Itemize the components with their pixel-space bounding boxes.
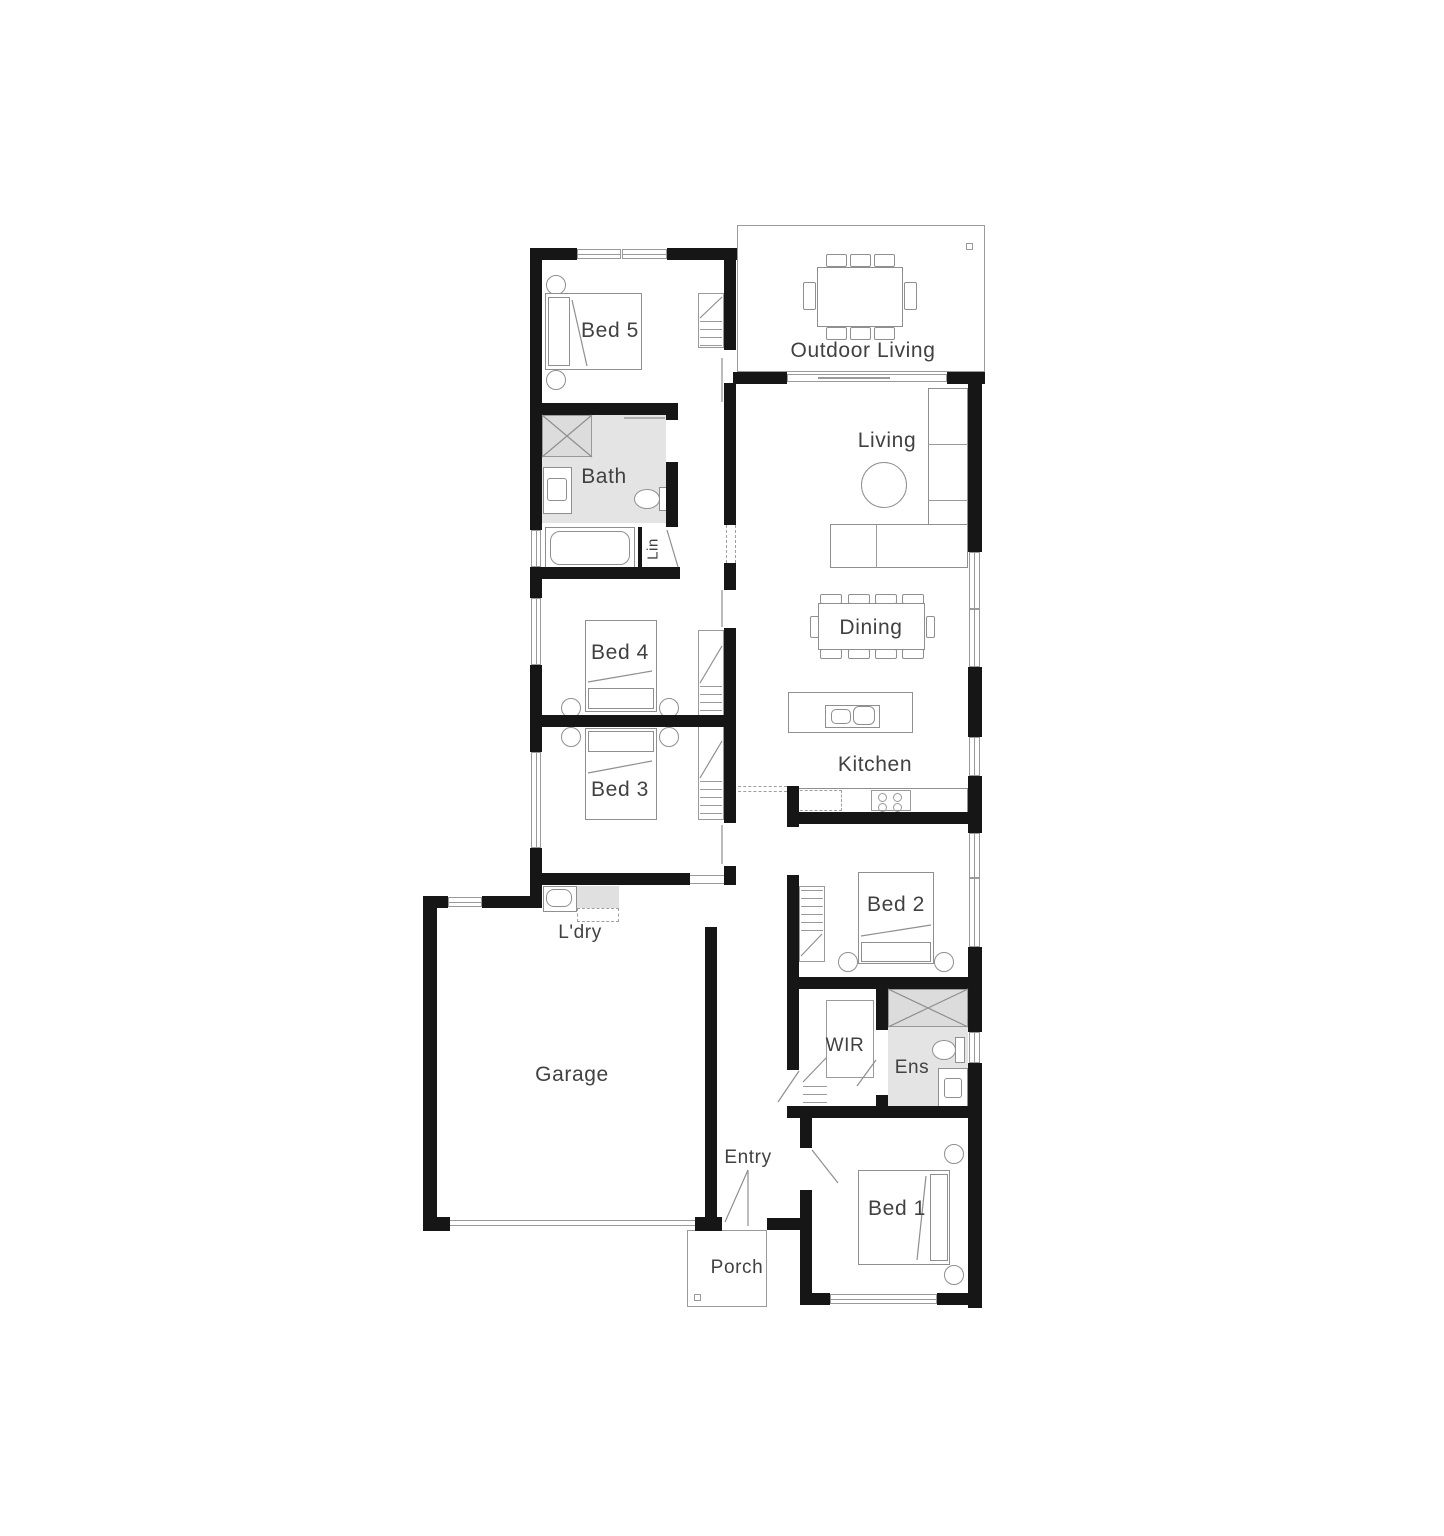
opening-dashed: [735, 525, 736, 563]
wall-segment: [542, 403, 668, 415]
cooktop-symbol: [871, 790, 911, 811]
wall-segment: [724, 563, 736, 590]
window: [531, 752, 541, 848]
wall-segment: [666, 462, 678, 527]
toilet-cistern: [955, 1037, 965, 1063]
window: [969, 737, 980, 776]
window: [531, 530, 541, 567]
wall-segment: [530, 248, 542, 530]
room-label-bath: Bath: [581, 465, 627, 489]
room-label-bed2: Bed 2: [867, 893, 925, 917]
room-label-ens: Ens: [895, 1057, 930, 1079]
bed-headboard: [588, 688, 654, 709]
floor-plan: Bed 5 Outdoor Living Living Bath Lin Din…: [0, 0, 1444, 1536]
bathtub-inner: [550, 531, 630, 565]
wall-segment: [530, 665, 542, 752]
chair-symbol: [826, 254, 847, 267]
room-label-outdoor: Outdoor Living: [791, 339, 936, 363]
bedside-table-icon: [838, 952, 858, 972]
wall-segment: [787, 989, 799, 1070]
wall-segment: [787, 1106, 970, 1118]
wall-segment: [968, 667, 982, 737]
wall-segment: [666, 403, 678, 420]
sofa-cushion-line: [928, 500, 968, 501]
wall-segment: [800, 1293, 830, 1305]
room-label-wir: WIR: [826, 1035, 865, 1057]
room-label-entry: Entry: [724, 1147, 771, 1169]
wall-segment: [968, 372, 982, 552]
window: [448, 897, 482, 907]
wall-segment: [667, 248, 737, 260]
overhead-dashed-line: [733, 791, 787, 792]
cavity-slider-line: [690, 875, 724, 876]
vanity-basin: [944, 1078, 962, 1098]
room-label-bed3: Bed 3: [591, 778, 649, 802]
robe-shelves: [801, 890, 823, 932]
wall-segment: [733, 372, 787, 384]
wall-segment: [542, 873, 690, 885]
window: [969, 833, 980, 947]
laundry-appliance-dashed: [577, 908, 619, 922]
wall-segment: [705, 927, 717, 1218]
window: [969, 1032, 980, 1063]
ens-shower: [888, 989, 968, 1027]
room-label-bed4: Bed 4: [591, 641, 649, 665]
wall-segment: [947, 372, 985, 384]
chair-symbol: [904, 282, 917, 310]
window: [622, 249, 667, 259]
chair-symbol: [820, 649, 842, 659]
bed-headboard: [930, 1174, 948, 1261]
opening-dashed: [726, 525, 727, 563]
bed-headboard: [548, 297, 570, 366]
porch-corner-marker: [694, 1294, 701, 1301]
vanity-basin: [547, 478, 567, 501]
wall-segment: [423, 1217, 450, 1231]
garage-door-line: [450, 1225, 695, 1226]
bedside-table-icon: [546, 370, 566, 390]
room-label-living: Living: [858, 429, 916, 453]
wall-segment: [423, 896, 437, 1230]
wall-segment: [530, 567, 542, 598]
window-mullion: [969, 608, 980, 610]
cooktop-burner: [878, 803, 887, 812]
garage-door-line: [450, 1220, 695, 1221]
outdoor-table-symbol: [817, 267, 903, 327]
cavity-slider-line: [690, 883, 724, 884]
wall-segment: [638, 527, 642, 567]
wall-segment: [787, 875, 799, 989]
bed-headboard: [588, 731, 654, 752]
room-label-dining: Dining: [839, 616, 902, 640]
cooktop-burner: [893, 803, 902, 812]
chair-symbol: [850, 254, 871, 267]
bedside-table-icon: [934, 952, 954, 972]
wall-segment: [724, 628, 736, 823]
chair-symbol: [874, 254, 895, 267]
toilet-symbol: [634, 489, 660, 509]
room-label-bed1: Bed 1: [868, 1197, 926, 1221]
chair-symbol: [848, 649, 870, 659]
wall-segment: [542, 715, 724, 727]
sliding-door-rail: [818, 377, 890, 379]
overhead-dashed-line: [733, 786, 787, 787]
toilet-symbol: [932, 1040, 956, 1060]
sofa-symbol: [830, 524, 968, 568]
wall-segment: [968, 776, 982, 833]
robe-shelves: [700, 321, 722, 347]
wall-segment: [724, 260, 736, 350]
wall-segment: [876, 977, 888, 1030]
room-label-kitchen: Kitchen: [838, 753, 912, 777]
bedside-table-icon: [944, 1144, 964, 1164]
bedside-table-icon: [659, 727, 679, 747]
wall-segment: [968, 947, 982, 1032]
cooktop-burner: [878, 793, 887, 802]
wall-segment: [724, 383, 736, 525]
window: [830, 1294, 937, 1304]
wall-segment: [542, 567, 680, 579]
wall-segment: [787, 786, 799, 827]
chair-symbol: [875, 649, 897, 659]
kitchen-sink-bowl: [831, 709, 851, 724]
window-mullion: [969, 877, 980, 879]
room-label-ldry: L'dry: [558, 922, 602, 944]
wall-segment: [937, 1293, 982, 1305]
bedside-table-icon: [944, 1265, 964, 1285]
wall-segment: [724, 866, 736, 885]
wall-segment: [787, 812, 982, 824]
wall-segment: [800, 1118, 812, 1148]
side-table-symbol: [861, 462, 907, 508]
room-label-porch: Porch: [711, 1257, 764, 1279]
wall-segment: [968, 1063, 982, 1308]
bedside-table-icon: [546, 275, 566, 295]
chair-symbol: [926, 616, 935, 638]
cooktop-burner: [893, 793, 902, 802]
sofa-cushion-line: [928, 444, 968, 445]
robe-shelves: [700, 781, 722, 815]
laundry-appliance-space: [577, 886, 619, 908]
chair-symbol: [902, 649, 924, 659]
chair-symbol: [803, 282, 816, 310]
sofa-cushion-line: [876, 524, 877, 568]
kitchen-sink-bowl: [853, 706, 875, 725]
room-label-garage: Garage: [535, 1063, 609, 1087]
bed-headboard: [861, 942, 931, 962]
outdoor-corner-marker: [966, 243, 973, 250]
window: [531, 598, 541, 665]
wall-segment: [482, 896, 542, 908]
window: [577, 249, 621, 259]
room-label-lin: Lin: [645, 538, 662, 560]
room-label-bed5: Bed 5: [581, 319, 639, 343]
bedside-table-icon: [561, 727, 581, 747]
wall-segment: [695, 1217, 722, 1231]
bath-shower: [542, 415, 592, 457]
laundry-trough-bowl: [546, 889, 572, 907]
wall-segment: [800, 1190, 812, 1305]
